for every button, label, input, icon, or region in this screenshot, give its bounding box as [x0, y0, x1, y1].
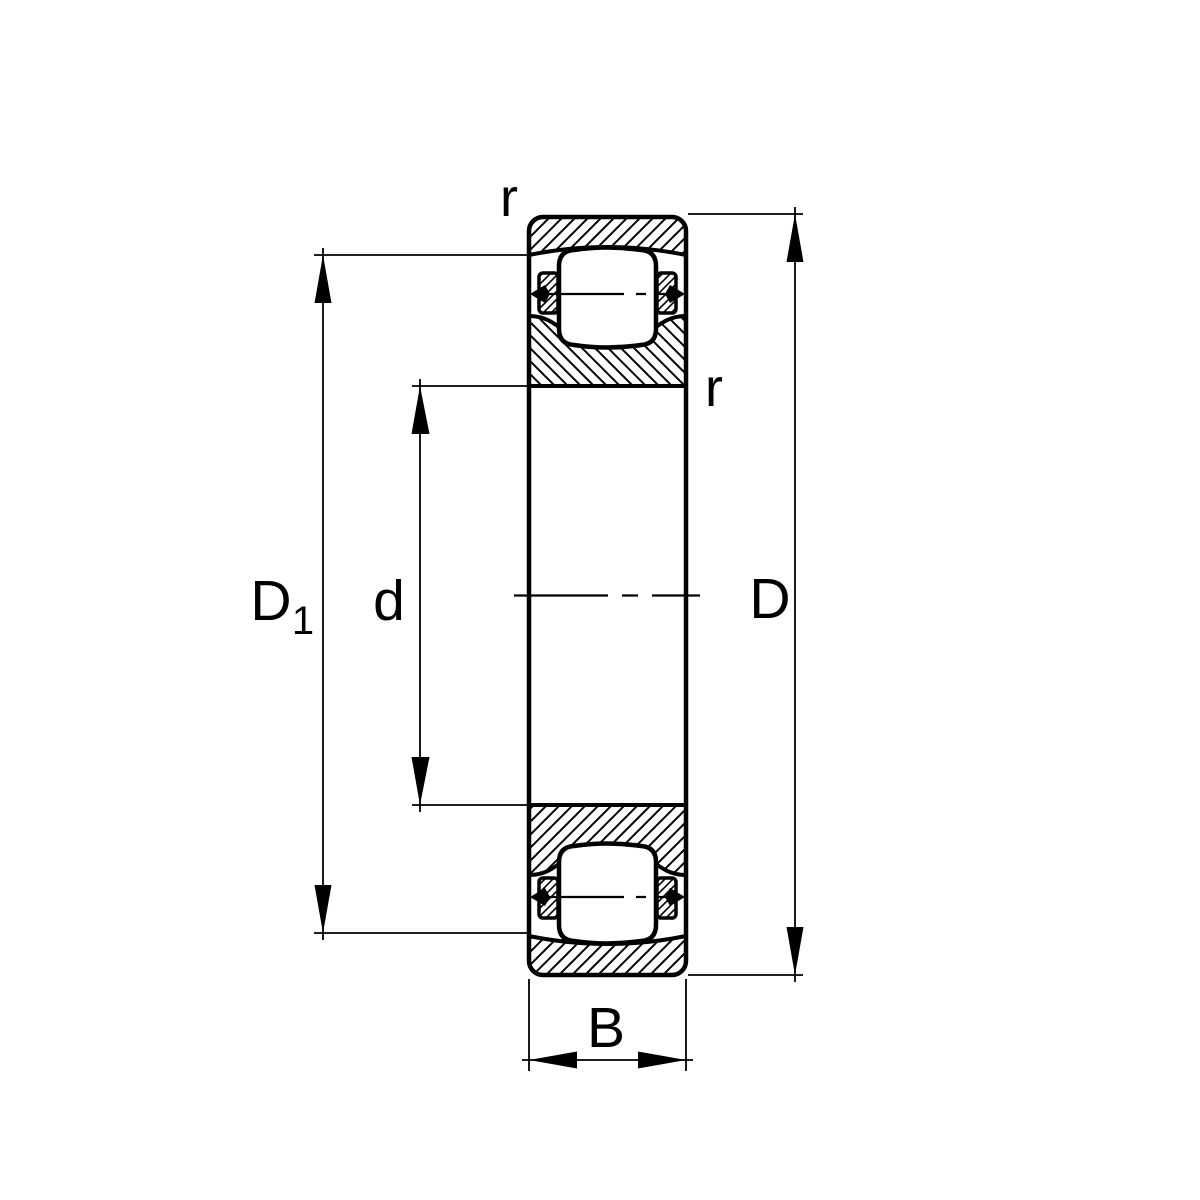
dimension-label-texts: D 1 d D B r r	[250, 168, 790, 1060]
label-bore-diameter: d	[373, 569, 405, 633]
bearing-section-drawing: D 1 d D B r r	[0, 0, 1200, 1200]
label-width: B	[587, 996, 625, 1060]
label-shoulder-diameter-subscript: 1	[292, 599, 314, 643]
barrel-roller-top	[559, 248, 656, 348]
arrow-d1-up	[315, 255, 332, 303]
label-chamfer-outer: r	[500, 168, 518, 228]
arrow-d-up	[412, 386, 430, 434]
label-outside-diameter: D	[749, 567, 790, 631]
arrow-d-down	[412, 757, 430, 805]
drawing-canvas: D 1 d D B r r	[0, 0, 1200, 1200]
arrow-D-up	[787, 214, 804, 262]
arrow-B-right	[638, 1052, 686, 1069]
arrow-D-down	[787, 927, 804, 975]
arrow-B-left	[529, 1052, 577, 1069]
arrow-d1-down	[315, 885, 332, 933]
barrel-roller-bottom	[559, 844, 656, 944]
label-chamfer-inner: r	[705, 358, 723, 418]
label-shoulder-diameter: D	[250, 569, 291, 633]
